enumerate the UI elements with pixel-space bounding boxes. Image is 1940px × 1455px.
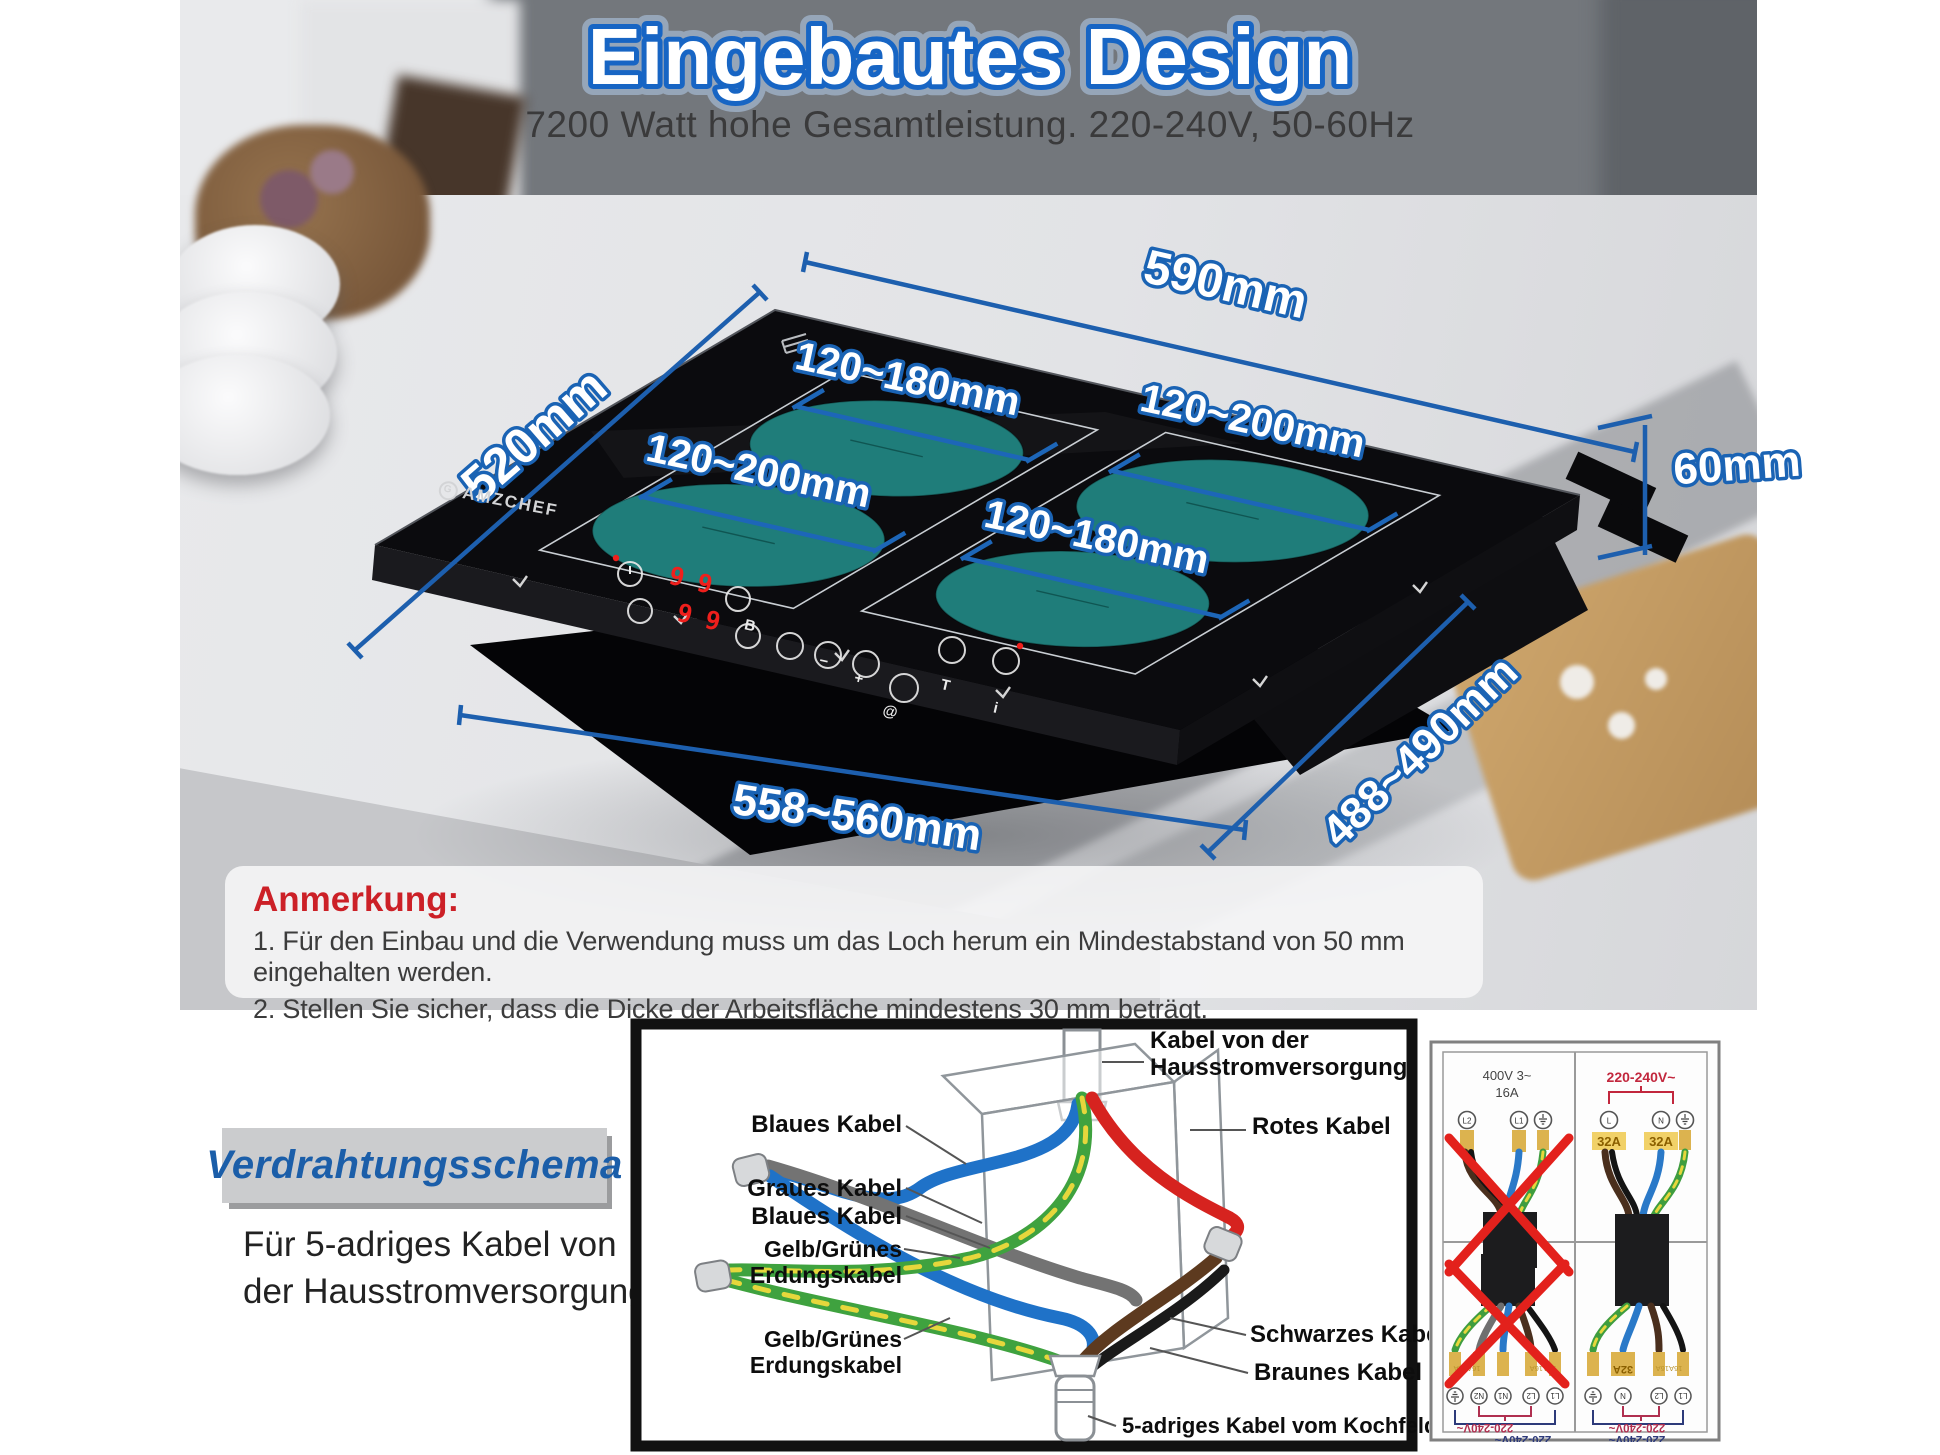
infographic-canvas: −+@ TiB 9 9 9 9 590mm 520 — [0, 0, 1940, 1455]
label-black-cable: Schwarzes Kabel — [1250, 1322, 1446, 1349]
q1-terminal-l1: L1 — [1515, 1117, 1524, 1126]
cooktop-cable-bottom — [1050, 1356, 1100, 1440]
q4-fuse-label-2: 16A16A — [1656, 1364, 1683, 1373]
label-red-cable: Rotes Kabel — [1252, 1114, 1391, 1141]
junction-box-diagram — [630, 1018, 1418, 1452]
q3-terminal-l1: L1 — [1550, 1391, 1559, 1400]
q2-terminal-l: L — [1607, 1117, 1612, 1126]
q2-terminal-n: N — [1658, 1117, 1664, 1126]
q2-fuse-1: 32A — [1597, 1134, 1621, 1149]
q2-fuse-2: 32A — [1649, 1134, 1673, 1149]
brand-logo-icon: G — [437, 479, 459, 501]
page-subtitle: 7200 Watt hohe Gesamtleistung. 220-240V,… — [0, 104, 1940, 146]
q4-voltage-1: 220-240V~ — [1608, 1421, 1665, 1433]
label-blue-cable-2: Blaues Kabel — [695, 1204, 902, 1231]
q4-terminal-n: N — [1620, 1391, 1626, 1400]
q4-terminal-l1: L1 — [1678, 1391, 1687, 1400]
wiring-options-chart: 400V 3~ 16A L2 L1 220-240V~ — [1429, 1040, 1721, 1442]
q4-fuse-label-1: 32A — [1613, 1363, 1633, 1375]
label-earth-cable-1: Gelb/Grünes Erdungskabel — [630, 1237, 902, 1289]
label-cooktop-cable: 5-adriges Kabel vom Kochfeld — [1122, 1414, 1437, 1439]
wiring-description: Für 5-adriges Kabel von der Hausstromver… — [243, 1222, 673, 1315]
q3-voltage-1: 220-240V~ — [1456, 1421, 1513, 1433]
dim-top-width: 590mm — [1139, 240, 1312, 329]
wiring-schema-badge: Verdrahtungsschema — [222, 1128, 607, 1203]
dim-height: 60mm — [1672, 437, 1802, 495]
note-panel: Anmerkung: 1. Für den Einbau und die Ver… — [225, 866, 1483, 998]
q1-title-line2: 16A — [1495, 1085, 1518, 1100]
wiring-schema-badge-label: Verdrahtungsschema — [206, 1143, 623, 1188]
q1-title-line1: 400V 3~ — [1483, 1068, 1532, 1083]
title-banner: Eingebautes Design Eingebautes Design — [300, 6, 1640, 112]
note-heading: Anmerkung: — [253, 880, 1483, 920]
q3-terminal-l2: L2 — [1526, 1391, 1535, 1400]
note-item-1: 1. Für den Einbau und die Verwendung mus… — [253, 926, 1483, 988]
label-supply-cable: Kabel von der Hausstromversorgung — [1150, 1028, 1418, 1082]
label-brown-cable: Braunes Kabel — [1254, 1360, 1422, 1387]
boost-indicator-dot — [1017, 643, 1023, 649]
label-blue-cable-1: Blaues Kabel — [695, 1112, 902, 1139]
q3-terminal-n2: N2 — [1473, 1391, 1484, 1400]
label-gray-cable: Graues Kabel — [695, 1176, 902, 1203]
q4-voltage-2: 220-240V~ — [1608, 1433, 1665, 1442]
q3-voltage-2: 220-240V~ — [1494, 1433, 1551, 1442]
q2-title: 220-240V~ — [1607, 1069, 1676, 1085]
q1-terminal-l2: L2 — [1463, 1117, 1472, 1126]
wiring-description-line2: der Hausstromversorgung — [243, 1272, 648, 1311]
q3-terminal-n1: N1 — [1497, 1391, 1508, 1400]
page-title: Eingebautes Design — [588, 12, 1353, 101]
wiring-description-line1: Für 5-adriges Kabel von — [243, 1225, 617, 1264]
q4-terminal-l2: L2 — [1654, 1391, 1663, 1400]
label-earth-cable-2: Gelb/Grünes Erdungskabel — [630, 1327, 902, 1379]
power-indicator-dot — [613, 555, 619, 561]
